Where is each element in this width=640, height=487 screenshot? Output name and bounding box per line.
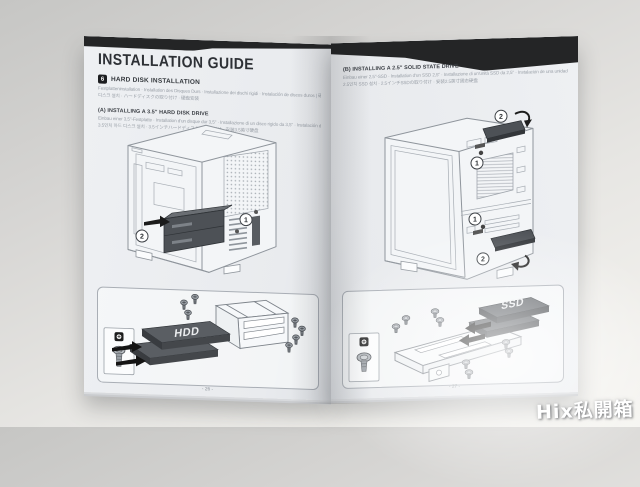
hdd-detail-box: HDD — [97, 286, 319, 390]
right-page: (B) INSTALLING A 2.5" SOLID STATE DRIVE … — [331, 36, 578, 399]
case-hdd-diagram: 2 1 — [106, 111, 308, 290]
ssd-exploded-diagram: SSD — [343, 286, 561, 386]
section-number-badge: 6 — [98, 74, 107, 83]
svg-text:2: 2 — [499, 114, 503, 121]
thumbscrew-legend — [349, 333, 379, 382]
svg-text:1: 1 — [244, 217, 248, 224]
left-page: INSTALLATION GUIDE 6 HARD DISK INSTALLAT… — [84, 36, 331, 401]
hdd-exploded-diagram: HDD — [98, 287, 316, 387]
rear-mesh-panel — [224, 149, 268, 219]
step-1-bottom-marker: 1 — [469, 213, 481, 225]
svg-text:2: 2 — [481, 256, 485, 263]
ssd-detail-box: SSD — [342, 284, 564, 389]
case-ssd-diagram: 2 1 1 2 — [355, 107, 557, 291]
installation-guide-booklet: INSTALLATION GUIDE 6 HARD DISK INSTALLAT… — [84, 36, 578, 392]
rotate-arrow-top-head — [524, 119, 532, 127]
svg-text:2: 2 — [140, 233, 144, 240]
drive-cage — [216, 299, 288, 351]
screw-legend — [104, 328, 134, 375]
page-title: INSTALLATION GUIDE — [98, 49, 321, 75]
step-2-marker: 2 — [136, 230, 148, 242]
step-2-top-marker: 2 — [495, 110, 507, 122]
photographer-watermark: Hix私開箱 — [536, 394, 635, 424]
step-1-top-marker: 1 — [471, 157, 483, 169]
step-1-marker: 1 — [240, 213, 252, 225]
svg-text:1: 1 — [473, 216, 477, 223]
step-2-bottom-marker: 2 — [477, 253, 489, 265]
rear-bracket — [252, 215, 260, 246]
section-title: HARD DISK INSTALLATION — [111, 76, 200, 86]
svg-text:1: 1 — [475, 160, 479, 167]
